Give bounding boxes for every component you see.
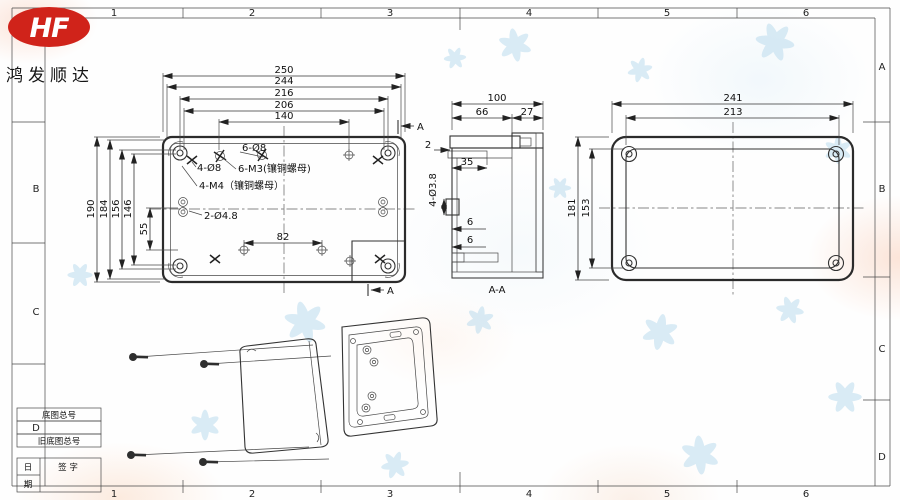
watermark-leaves	[67, 19, 861, 481]
dim-6-lower: 6	[467, 235, 473, 246]
zone-row-c-left: C	[33, 307, 40, 318]
dim-241: 241	[723, 93, 742, 104]
section-label: A-A	[489, 285, 506, 296]
zone-col-2: 2	[249, 8, 255, 19]
drawing-frame: 1 2 3 4 5 6 1 2 3 4 5 6 A B C D B C	[12, 8, 890, 500]
callout-6-m3: 6-M3(镶铜螺母)	[238, 162, 311, 175]
section-mark-a-bottom: A	[387, 286, 394, 297]
dim-244: 244	[274, 76, 293, 87]
dim-66: 66	[476, 107, 489, 118]
zone-col-4: 4	[526, 8, 532, 19]
base-drawing-no-label: 底图总号	[42, 410, 76, 421]
zone-letters-left: B C	[33, 184, 40, 318]
company-name: 鸿发顺达	[6, 66, 94, 86]
dim-184: 184	[99, 199, 110, 218]
plan-view: 250 244 216 206 140 190 184 156 146 55 8…	[86, 65, 424, 297]
dim-82: 82	[277, 232, 290, 243]
zone-col-2b: 2	[249, 489, 255, 500]
dim-6-upper: 6	[467, 217, 473, 228]
dim-181: 181	[567, 198, 578, 217]
dim-4-d38: 4-Ø3.8	[427, 173, 439, 207]
dim-156: 156	[111, 199, 122, 218]
zone-col-5: 5	[664, 8, 670, 19]
logo-text: HF	[29, 13, 70, 44]
zone-row-d: D	[878, 452, 886, 463]
interior-bosses	[351, 330, 426, 425]
dim-250: 250	[274, 65, 293, 76]
dim-55: 55	[139, 223, 150, 236]
zone-col-3b: 3	[387, 489, 393, 500]
dim-190: 190	[86, 199, 97, 218]
end-view: 241 213 181 153	[567, 93, 866, 295]
dim-100: 100	[487, 93, 506, 104]
zone-row-c: C	[879, 344, 886, 355]
dim-216: 216	[274, 88, 293, 99]
company-logo: HF 鸿发顺达	[6, 7, 94, 86]
callout-4-d8: 4-Ø8	[197, 162, 221, 174]
zone-col-6b: 6	[803, 489, 809, 500]
zone-col-3: 3	[387, 8, 393, 19]
callout-2-d48: 2-Ø4.8	[204, 210, 238, 222]
zone-col-4b: 4	[526, 489, 532, 500]
dim-140: 140	[274, 111, 293, 122]
zone-row-d-left: D	[32, 423, 40, 434]
dim-213: 213	[723, 107, 742, 118]
old-base-drawing-no-label: 旧底图总号	[38, 436, 81, 447]
section-mark-a-top: A	[417, 122, 424, 133]
dim-27: 27	[521, 107, 534, 118]
zone-row-b-left: B	[33, 184, 40, 195]
dim-153: 153	[581, 198, 592, 217]
dim-206: 206	[274, 100, 293, 111]
zone-col-6: 6	[803, 8, 809, 19]
zone-row-a: A	[879, 62, 886, 73]
zone-col-1b: 1	[111, 489, 117, 500]
dim-35: 35	[461, 157, 474, 168]
callout-6-d8: 6-Ø8	[242, 142, 266, 154]
date-label-top: 日	[24, 463, 33, 473]
zone-col-1: 1	[111, 8, 117, 19]
zone-row-b: B	[879, 184, 886, 195]
date-label-bottom: 期	[24, 480, 33, 490]
zone-col-5b: 5	[664, 489, 670, 500]
corner-screws	[622, 147, 844, 271]
callout-4-m4: 4-M4（镶铜螺母）	[199, 179, 284, 192]
title-block: 底图总号 D 旧底图总号 日 期 签 字	[17, 408, 101, 492]
signature-label: 签 字	[58, 462, 78, 473]
drawing-canvas: 1 2 3 4 5 6 1 2 3 4 5 6 A B C D B C HF 鸿	[0, 0, 900, 500]
section-view: 100 66 27 2 35 4-Ø3.8 6 6 A-A	[425, 93, 543, 296]
dim-146: 146	[123, 199, 134, 218]
dim-2: 2	[425, 140, 431, 151]
isometric-exploded-view	[127, 318, 437, 466]
